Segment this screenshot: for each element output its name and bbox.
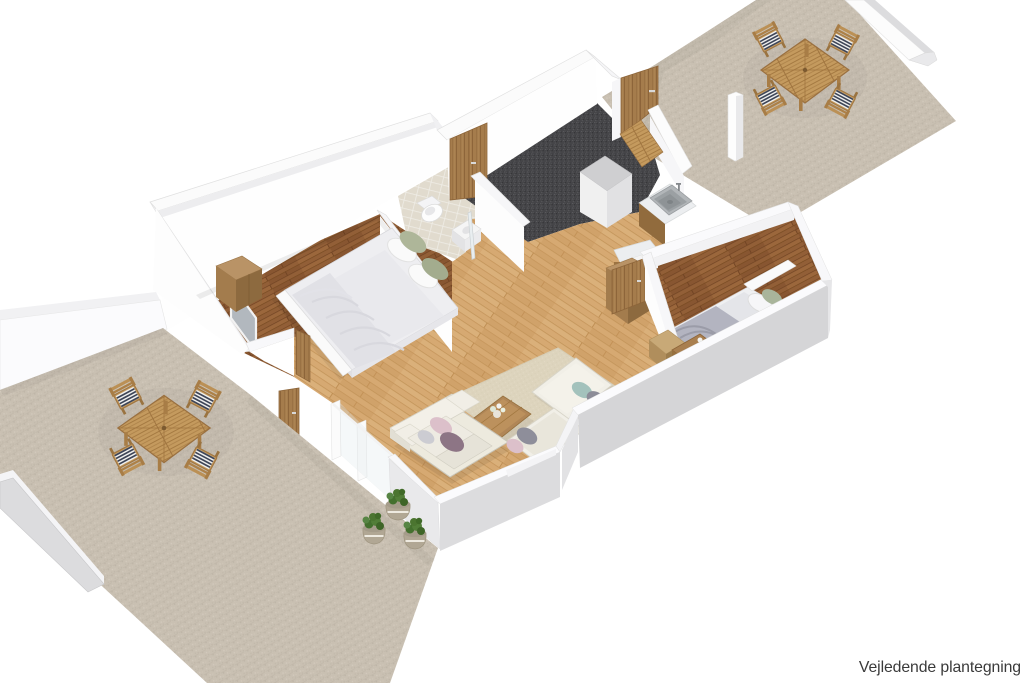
svg-text:Vejledende plantegning: Vejledende plantegning [859, 659, 1021, 676]
